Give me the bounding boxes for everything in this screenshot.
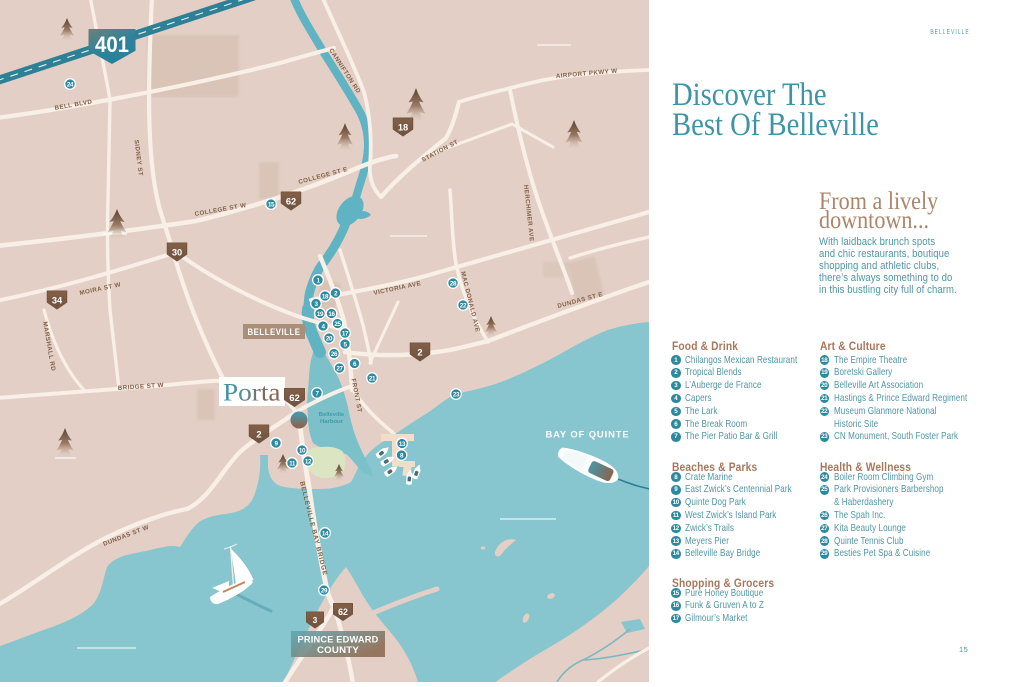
svg-text:18: 18 <box>322 293 329 300</box>
svg-text:3: 3 <box>313 615 318 625</box>
svg-text:29: 29 <box>321 587 328 594</box>
svg-text:2: 2 <box>256 429 261 439</box>
svg-text:23: 23 <box>453 391 460 398</box>
svg-text:2: 2 <box>417 347 422 357</box>
svg-text:28: 28 <box>450 280 457 287</box>
svg-text:27: 27 <box>336 365 343 372</box>
svg-text:62: 62 <box>338 607 348 617</box>
svg-text:15: 15 <box>268 201 275 208</box>
svg-text:Harbour: Harbour <box>320 419 344 425</box>
svg-text:401: 401 <box>95 32 129 57</box>
svg-text:11: 11 <box>289 460 296 467</box>
svg-text:24: 24 <box>67 81 74 88</box>
svg-text:19: 19 <box>317 311 324 318</box>
svg-text:10: 10 <box>299 447 306 454</box>
svg-text:14: 14 <box>322 530 329 537</box>
svg-text:34: 34 <box>52 295 63 305</box>
svg-text:20: 20 <box>326 335 333 342</box>
svg-text:30: 30 <box>172 247 182 257</box>
svg-text:Porta: Porta <box>223 378 281 407</box>
svg-text:BELLEVILLE: BELLEVILLE <box>248 327 301 337</box>
svg-text:12: 12 <box>305 458 312 465</box>
svg-text:17: 17 <box>342 330 349 337</box>
svg-text:22: 22 <box>460 302 467 309</box>
svg-text:BAY OF QUINTE: BAY OF QUINTE <box>545 429 629 440</box>
svg-text:62: 62 <box>289 393 300 404</box>
svg-text:18: 18 <box>398 122 408 132</box>
svg-text:COUNTY: COUNTY <box>317 645 359 656</box>
svg-text:13: 13 <box>399 441 406 448</box>
svg-text:26: 26 <box>331 351 338 358</box>
svg-text:Belleville: Belleville <box>319 412 345 418</box>
svg-text:62: 62 <box>286 196 296 206</box>
svg-text:21: 21 <box>369 375 376 382</box>
svg-text:25: 25 <box>334 321 341 328</box>
svg-text:16: 16 <box>328 311 335 318</box>
